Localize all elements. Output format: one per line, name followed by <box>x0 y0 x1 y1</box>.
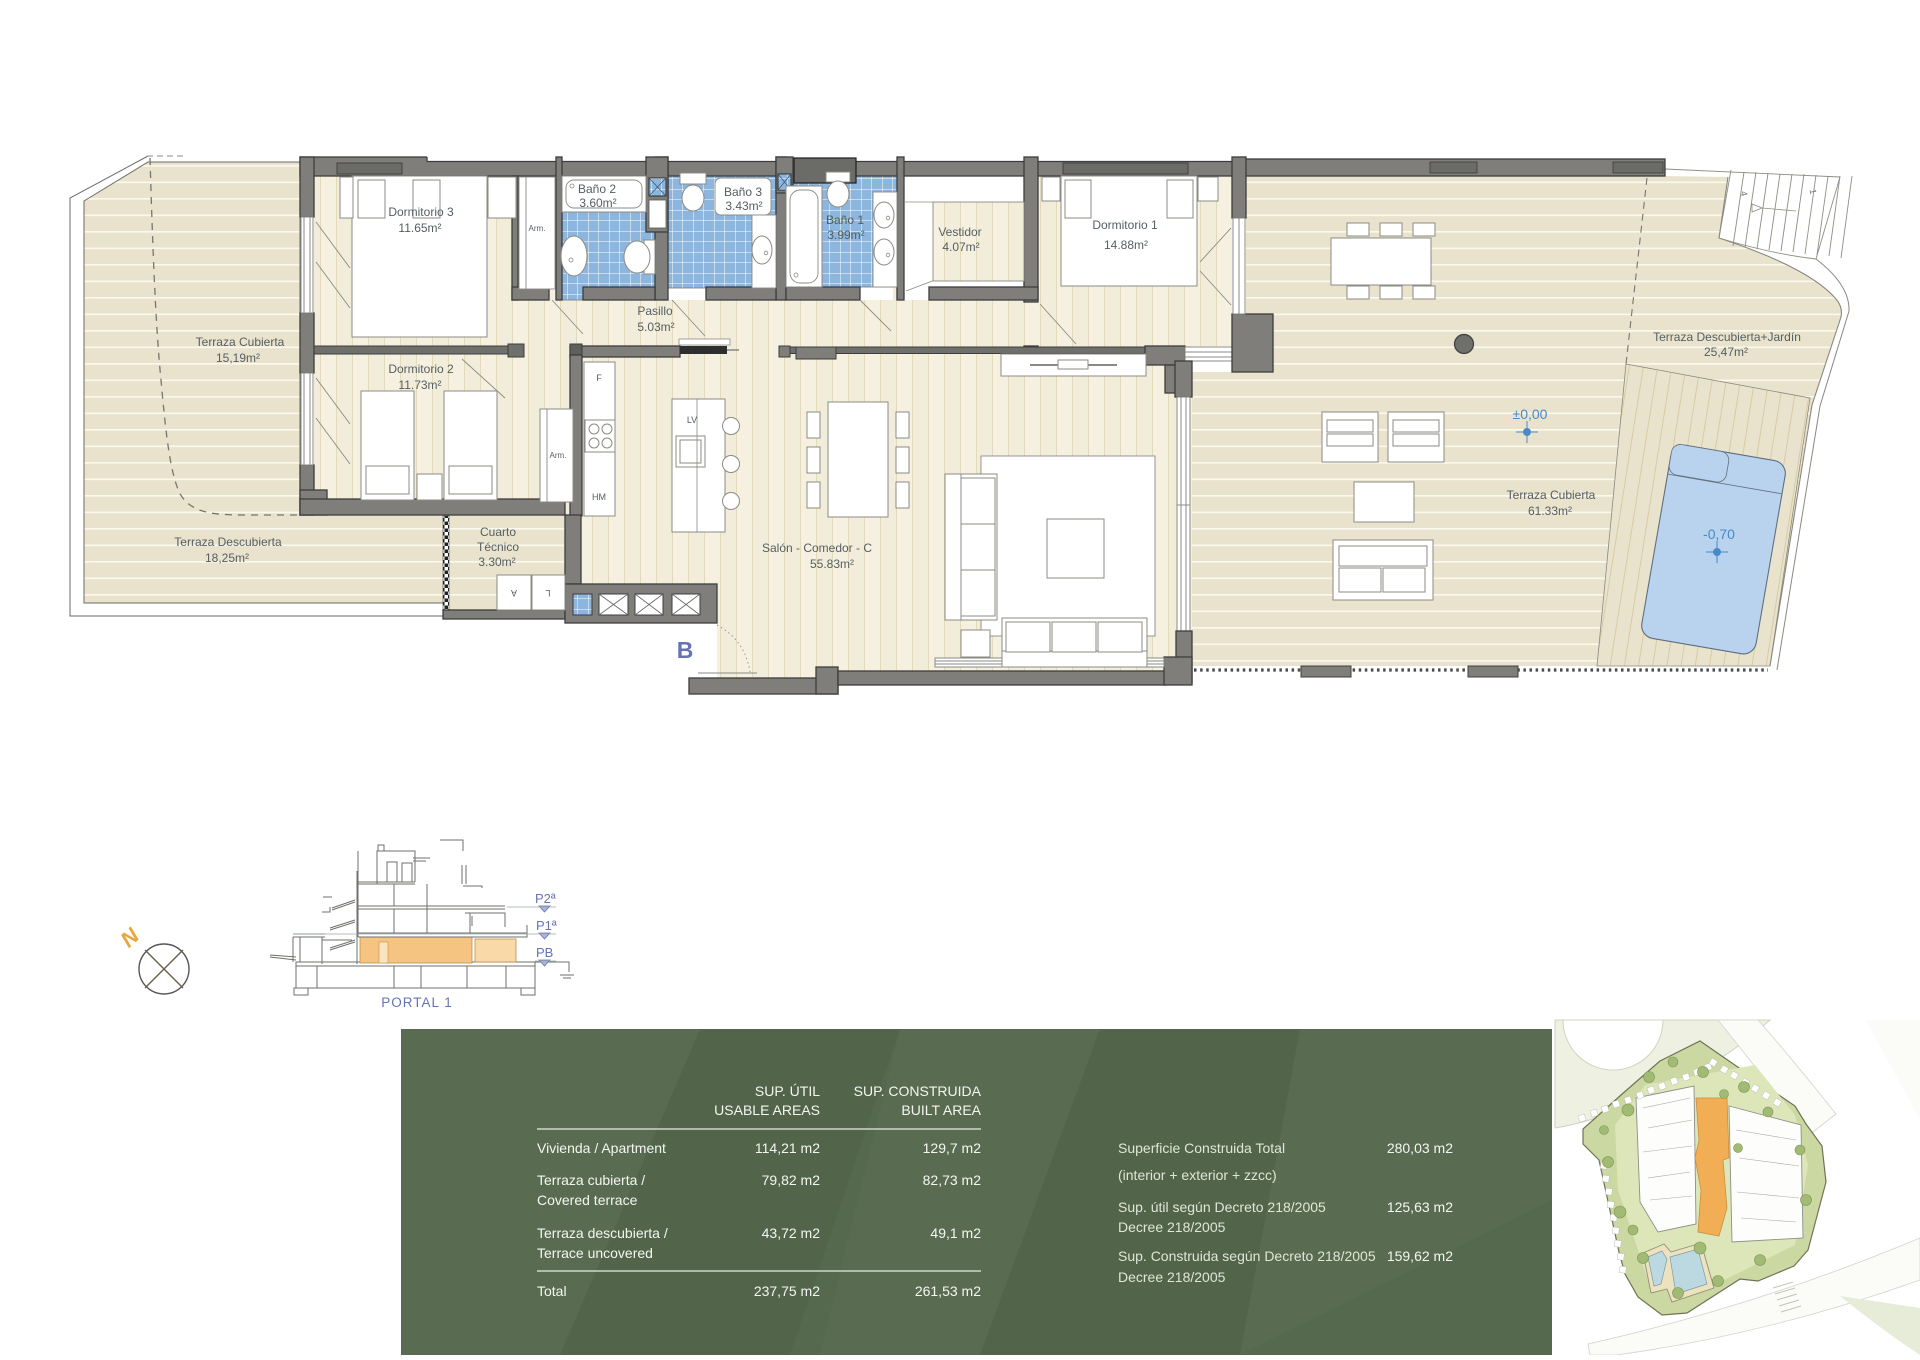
svg-text:Sup. útil según Decreto 218/20: Sup. útil según Decreto 218/2005 <box>1118 1199 1326 1215</box>
svg-text:Covered terrace: Covered terrace <box>537 1192 638 1208</box>
svg-text:Sup. Construida según Decreto: Sup. Construida según Decreto 218/2005 <box>1118 1248 1376 1264</box>
svg-text:15,19m²: 15,19m² <box>216 351 260 365</box>
svg-text:Vestidor: Vestidor <box>938 225 981 239</box>
svg-text:3.30m²: 3.30m² <box>478 555 515 569</box>
svg-text:11.65m²: 11.65m² <box>398 221 441 235</box>
svg-text:Baño 1: Baño 1 <box>826 213 864 227</box>
svg-text:55.83m²: 55.83m² <box>810 557 854 571</box>
svg-text:4.07m²: 4.07m² <box>942 240 979 254</box>
svg-text:Técnico: Técnico <box>477 540 519 554</box>
svg-text:82,73 m2: 82,73 m2 <box>923 1172 982 1188</box>
svg-text:F: F <box>596 373 602 383</box>
svg-text:14.88m²: 14.88m² <box>1104 238 1148 252</box>
svg-text:-0,70: -0,70 <box>1703 526 1735 542</box>
svg-text:Baño 3: Baño 3 <box>724 185 762 199</box>
svg-text:Terraza Descubierta: Terraza Descubierta <box>174 535 282 549</box>
svg-text:18,25m²: 18,25m² <box>205 551 249 565</box>
svg-text:49,1 m2: 49,1 m2 <box>930 1225 981 1241</box>
svg-text:Terraza Cubierta: Terraza Cubierta <box>196 335 285 349</box>
svg-text:Terraza cubierta /: Terraza cubierta / <box>537 1172 645 1188</box>
svg-text:PB: PB <box>536 945 553 960</box>
svg-text:125,63 m2: 125,63 m2 <box>1387 1199 1453 1215</box>
svg-text:Terraza Cubierta: Terraza Cubierta <box>1507 488 1596 502</box>
svg-text:Decree 218/2005: Decree 218/2005 <box>1118 1269 1226 1285</box>
svg-text:Dormitorio 2: Dormitorio 2 <box>388 362 454 376</box>
svg-text:Cuarto: Cuarto <box>480 525 516 539</box>
svg-text:Superficie Construida Total: Superficie Construida Total <box>1118 1140 1285 1156</box>
svg-text:114,21 m2: 114,21 m2 <box>755 1140 820 1156</box>
svg-text:LV: LV <box>687 415 697 425</box>
svg-text:159,62 m2: 159,62 m2 <box>1387 1248 1453 1264</box>
svg-text:61.33m²: 61.33m² <box>1528 504 1572 518</box>
svg-text:Baño 2: Baño 2 <box>578 182 616 196</box>
svg-text:(interior + exterior + zzcc): (interior + exterior + zzcc) <box>1118 1167 1277 1183</box>
svg-text:P2ª: P2ª <box>535 891 556 906</box>
svg-text:280,03 m2: 280,03 m2 <box>1387 1140 1453 1156</box>
svg-text:Salón - Comedor - C: Salón - Comedor - C <box>762 541 872 555</box>
svg-text:237,75 m2: 237,75 m2 <box>754 1283 820 1299</box>
svg-text:Total: Total <box>537 1283 567 1299</box>
svg-text:P1ª: P1ª <box>536 918 557 933</box>
svg-text:25,47m²: 25,47m² <box>1704 345 1748 359</box>
svg-text:BUILT AREA: BUILT AREA <box>901 1102 981 1118</box>
svg-text:11.73m²: 11.73m² <box>398 378 441 392</box>
svg-text:Decree 218/2005: Decree 218/2005 <box>1118 1219 1226 1235</box>
svg-text:43,72 m2: 43,72 m2 <box>762 1225 821 1241</box>
svg-text:L: L <box>545 588 550 598</box>
svg-text:HM: HM <box>592 492 606 502</box>
svg-text:±0,00: ±0,00 <box>1513 406 1548 422</box>
svg-text:261,53 m2: 261,53 m2 <box>915 1283 981 1299</box>
svg-text:Vivienda / Apartment: Vivienda / Apartment <box>537 1140 666 1156</box>
svg-text:A: A <box>511 588 517 598</box>
svg-text:Arm.: Arm. <box>529 224 546 233</box>
svg-text:Terraza descubierta /: Terraza descubierta / <box>537 1225 668 1241</box>
svg-text:3.43m²: 3.43m² <box>725 199 762 213</box>
svg-text:129,7 m2: 129,7 m2 <box>923 1140 982 1156</box>
svg-text:5.03m²: 5.03m² <box>637 320 674 334</box>
svg-text:Pasillo: Pasillo <box>637 304 673 318</box>
svg-text:3.60m²: 3.60m² <box>579 196 616 210</box>
svg-text:Terrace uncovered: Terrace uncovered <box>537 1245 653 1261</box>
svg-text:Arm.: Arm. <box>550 451 567 460</box>
svg-text:SUP. ÚTIL: SUP. ÚTIL <box>755 1083 820 1099</box>
svg-text:Dormitorio 3: Dormitorio 3 <box>388 205 454 219</box>
svg-text:Terraza Descubierta+Jardín: Terraza Descubierta+Jardín <box>1653 330 1801 344</box>
svg-text:SUP. CONSTRUIDA: SUP. CONSTRUIDA <box>854 1083 982 1099</box>
svg-text:B: B <box>677 637 694 663</box>
svg-text:3.99m²: 3.99m² <box>827 228 864 242</box>
svg-text:PORTAL 1: PORTAL 1 <box>381 995 453 1010</box>
svg-text:USABLE AREAS: USABLE AREAS <box>714 1102 820 1118</box>
svg-text:79,82 m2: 79,82 m2 <box>762 1172 821 1188</box>
svg-text:Dormitorio 1: Dormitorio 1 <box>1092 218 1158 232</box>
